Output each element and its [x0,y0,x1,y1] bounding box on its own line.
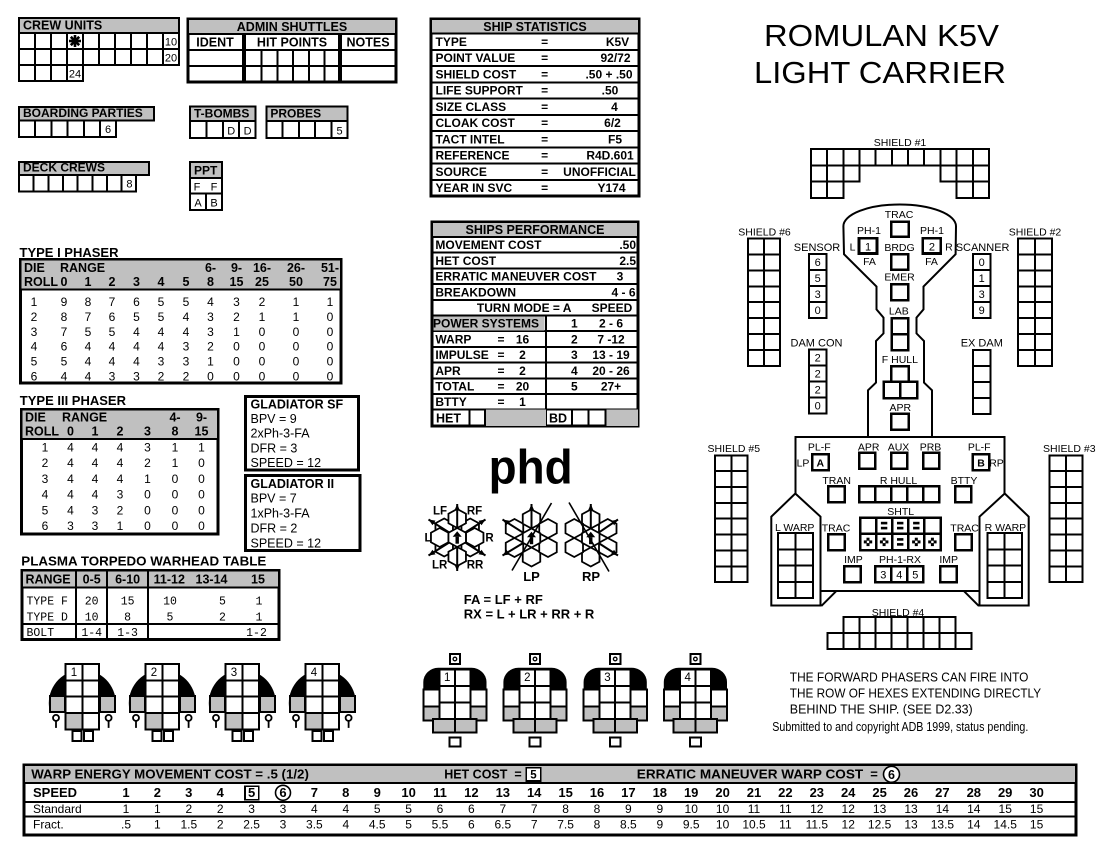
svg-text:4: 4 [67,472,74,486]
svg-text:5: 5 [248,785,255,800]
svg-text:=: = [497,364,504,378]
svg-text:K5V: K5V [606,35,629,49]
svg-text:1: 1 [865,242,871,254]
svg-text:6.5: 6.5 [494,818,511,832]
svg-text:2: 2 [183,370,190,384]
svg-text:SENSOR: SENSOR [794,242,841,254]
svg-text:CREW UNITS: CREW UNITS [23,19,102,33]
svg-text:1-2: 1-2 [246,627,267,640]
svg-text:7 -12: 7 -12 [597,332,625,346]
svg-text:3: 3 [880,570,886,582]
svg-text:4: 4 [117,456,124,470]
svg-text:0: 0 [198,488,205,502]
svg-text:4: 4 [133,325,140,339]
svg-text:1: 1 [444,672,450,684]
svg-text:IDENT: IDENT [196,36,234,50]
svg-text:4: 4 [92,488,99,502]
svg-text:4: 4 [217,785,225,800]
svg-text:0: 0 [815,305,821,317]
svg-text:8: 8 [85,295,92,309]
svg-text:RP: RP [582,569,600,584]
svg-text:1: 1 [42,441,49,455]
svg-text:DIE: DIE [24,261,45,275]
svg-text:3: 3 [571,348,578,362]
svg-text:=: = [497,380,504,394]
svg-text:20: 20 [516,380,530,394]
svg-text:24: 24 [69,69,81,81]
svg-text:3: 3 [185,785,192,800]
svg-text:2: 2 [31,310,38,324]
svg-text:3: 3 [979,289,985,301]
svg-text:.50 + .50: .50 + .50 [585,67,632,81]
svg-text:13: 13 [904,818,918,832]
svg-text:POINT VALUE: POINT VALUE [436,51,516,65]
svg-text:4: 4 [183,310,190,324]
svg-text:6-: 6- [205,261,216,275]
svg-text:RF: RF [467,506,482,518]
svg-text:A: A [194,198,202,210]
svg-text:0: 0 [259,355,266,369]
svg-text:ERRATIC MANEUVER WARP COST: ERRATIC MANEUVER WARP COST [637,767,863,782]
svg-text:20: 20 [85,596,99,609]
svg-text:3: 3 [231,667,237,679]
svg-text:1: 1 [172,441,179,455]
svg-text:14: 14 [967,802,981,816]
svg-text:=: = [541,181,548,195]
svg-text:10: 10 [685,802,699,816]
svg-text:4: 4 [684,672,691,684]
svg-text:0: 0 [172,488,179,502]
svg-text:3: 3 [133,370,140,384]
svg-text:T-BOMBS: T-BOMBS [194,107,249,121]
svg-text:=: = [541,132,548,146]
svg-text:1: 1 [259,310,266,324]
svg-text:4: 4 [342,802,349,816]
svg-text:4: 4 [896,570,902,582]
svg-text:6: 6 [42,519,49,533]
svg-text:F: F [211,182,218,194]
svg-text:5: 5 [183,295,190,309]
svg-text:2: 2 [217,818,224,832]
svg-text:1.5: 1.5 [180,818,197,832]
svg-text:3: 3 [117,488,124,502]
svg-text:2: 2 [519,364,526,378]
svg-text:SHIPS PERFORMANCE: SHIPS PERFORMANCE [466,223,605,237]
svg-text:DFR = 2: DFR = 2 [251,522,298,536]
svg-text:FA: FA [925,256,938,268]
svg-text:4: 4 [158,325,165,339]
svg-text:0: 0 [259,370,266,384]
svg-text:DECK CREWS: DECK CREWS [23,161,105,175]
svg-text:0: 0 [144,519,151,533]
svg-text:IMP: IMP [939,554,958,566]
svg-text:0: 0 [198,503,205,517]
svg-text:13 - 19: 13 - 19 [592,348,630,362]
svg-text:.50: .50 [619,238,636,252]
svg-text:2: 2 [571,332,578,346]
svg-text:9-: 9- [196,411,207,425]
svg-text:4: 4 [109,355,116,369]
svg-text:RP: RP [989,458,1004,470]
svg-text:2: 2 [207,340,214,354]
svg-text:4: 4 [133,355,140,369]
svg-text:1: 1 [327,295,334,309]
svg-text:5: 5 [31,355,38,369]
svg-text:5: 5 [42,503,49,517]
svg-text:PH-1: PH-1 [857,225,881,237]
svg-text:3: 3 [67,519,74,533]
svg-text:PLASMA TORPEDO WARHEAD TABLE: PLASMA TORPEDO WARHEAD TABLE [21,554,266,569]
svg-text:0: 0 [293,355,300,369]
svg-text:MOVEMENT COST: MOVEMENT COST [435,238,542,252]
svg-text:APR: APR [435,364,461,378]
svg-text:4: 4 [311,667,318,679]
svg-text:9: 9 [656,802,663,816]
svg-text:=: = [541,84,548,98]
svg-text:SHIELD #6: SHIELD #6 [738,227,791,239]
svg-text:=: = [541,51,548,65]
svg-text:F HULL: F HULL [882,354,918,366]
svg-text:29: 29 [998,785,1012,800]
svg-text:WARP ENERGY MOVEMENT COST = .5: WARP ENERGY MOVEMENT COST = .5 (1/2) [31,767,309,782]
svg-text:5: 5 [815,273,821,285]
svg-text:50: 50 [289,275,303,289]
svg-text:PH-1-RX: PH-1-RX [879,554,921,566]
svg-text:4: 4 [85,340,92,354]
svg-text:7: 7 [109,295,116,309]
svg-text:3: 3 [92,503,99,517]
svg-text:11-12: 11-12 [154,573,185,587]
svg-text:1xPh-3-FA: 1xPh-3-FA [251,507,311,521]
svg-text:2: 2 [109,275,116,289]
svg-text:24: 24 [841,785,856,800]
svg-text:3: 3 [183,355,190,369]
svg-text:SOURCE: SOURCE [436,165,487,179]
svg-text:3.5: 3.5 [306,818,323,832]
svg-text:12: 12 [810,802,824,816]
svg-text:4: 4 [117,441,124,455]
svg-text:4.5: 4.5 [369,818,386,832]
svg-text:SHIELD #1: SHIELD #1 [874,137,927,149]
svg-text:27: 27 [935,785,949,800]
svg-text:5: 5 [61,355,68,369]
svg-text:10: 10 [401,785,415,800]
svg-text:0: 0 [327,340,334,354]
svg-text:TURN MODE = A: TURN MODE = A [477,301,572,315]
svg-text:5: 5 [336,126,342,138]
svg-text:L: L [850,242,856,254]
svg-text:4: 4 [31,340,38,354]
svg-text:DAM CON: DAM CON [791,338,843,350]
svg-text:12: 12 [464,785,478,800]
svg-text:17: 17 [621,785,635,800]
svg-text:phd: phd [489,442,573,495]
svg-text:4: 4 [611,100,618,114]
svg-text:B: B [977,458,985,470]
svg-text:2: 2 [154,785,161,800]
svg-text:2: 2 [929,242,935,254]
svg-text:0: 0 [327,310,334,324]
svg-text:BREAKDOWN: BREAKDOWN [435,285,516,299]
svg-text:3: 3 [233,295,240,309]
svg-text:3: 3 [42,472,49,486]
svg-text:6: 6 [468,818,475,832]
svg-text:4: 4 [92,441,99,455]
svg-text:0: 0 [67,425,74,439]
svg-text:3: 3 [158,355,165,369]
svg-text:2: 2 [185,802,192,816]
svg-text:Submitted to and copyright ADB: Submitted to and copyright ADB 1999, sta… [772,720,1028,734]
svg-text:=: = [514,768,521,782]
svg-text:5: 5 [167,612,174,625]
svg-text:8: 8 [172,425,179,439]
svg-text:WARP: WARP [435,332,471,346]
svg-text:1: 1 [256,612,263,625]
svg-text:LIFE SUPPORT: LIFE SUPPORT [436,84,524,98]
svg-text:1: 1 [256,596,263,609]
svg-text:RANGE: RANGE [62,411,107,425]
svg-text:1: 1 [172,456,179,470]
svg-text:4: 4 [158,275,165,289]
svg-text:TRAC: TRAC [885,209,914,221]
svg-text:0: 0 [327,325,334,339]
svg-text:PROBES: PROBES [270,107,321,121]
svg-text:UNOFFICIAL: UNOFFICIAL [563,165,636,179]
svg-text:2.5: 2.5 [619,254,636,268]
svg-text:5: 5 [183,275,190,289]
svg-text:14.5: 14.5 [994,818,1018,832]
svg-text:Standard: Standard [33,802,82,816]
svg-text:1: 1 [154,818,161,832]
svg-text:4: 4 [42,488,49,502]
svg-text:15: 15 [251,573,265,587]
svg-text:POWER SYSTEMS: POWER SYSTEMS [433,317,539,331]
svg-text:6: 6 [437,802,444,816]
svg-text:=: = [541,67,548,81]
svg-text:GLADIATOR II: GLADIATOR II [251,477,335,491]
svg-text:PL-F: PL-F [808,442,831,454]
svg-text:TYPE D: TYPE D [27,612,69,625]
svg-text:3: 3 [144,441,151,455]
svg-text:R: R [485,533,494,545]
svg-text:2: 2 [524,672,530,684]
svg-text:15: 15 [1030,818,1044,832]
svg-text:2.5: 2.5 [243,818,260,832]
svg-text:15: 15 [558,785,572,800]
svg-text:5: 5 [219,596,226,609]
svg-text:4: 4 [109,340,116,354]
svg-text:4: 4 [92,472,99,486]
svg-text:10.5: 10.5 [742,818,766,832]
svg-text:4: 4 [342,818,349,832]
svg-text:ROLL: ROLL [25,425,59,439]
svg-text:0: 0 [293,340,300,354]
svg-text:5: 5 [158,295,165,309]
svg-text:IMP: IMP [844,554,863,566]
svg-text:13.5: 13.5 [931,818,955,832]
svg-text:SHIELD #3: SHIELD #3 [1043,443,1096,455]
svg-text:F5: F5 [608,132,622,146]
svg-text:D: D [244,126,252,138]
svg-text:=: = [870,767,878,782]
svg-text:18: 18 [653,785,667,800]
svg-text:2: 2 [151,667,157,679]
svg-text:D: D [227,126,235,138]
svg-text:1: 1 [233,325,240,339]
svg-text:SPEED: SPEED [33,785,77,800]
svg-text:0: 0 [172,472,179,486]
svg-text:SPEED: SPEED [592,301,633,315]
svg-text:8: 8 [594,802,601,816]
svg-text:1-4: 1-4 [81,627,102,640]
svg-text:3: 3 [109,370,116,384]
svg-text:PPT: PPT [194,164,218,178]
svg-text:11: 11 [748,802,761,816]
svg-text:4: 4 [67,456,74,470]
svg-text:0: 0 [172,503,179,517]
svg-text:5: 5 [405,802,412,816]
svg-text:A: A [817,458,825,470]
svg-text:0: 0 [327,370,334,384]
svg-text:9: 9 [374,785,381,800]
svg-text:2: 2 [158,370,165,384]
svg-text:9: 9 [625,802,632,816]
svg-text:13: 13 [904,802,918,816]
svg-text:R: R [945,242,953,254]
svg-text:TOTAL: TOTAL [435,380,474,394]
svg-text:6: 6 [61,340,68,354]
svg-text:EMER: EMER [884,272,915,284]
svg-text:0: 0 [198,519,205,533]
svg-text:3: 3 [604,672,610,684]
svg-text:1: 1 [207,355,214,369]
svg-text:75: 75 [323,275,337,289]
svg-text:1: 1 [85,275,92,289]
svg-text:9-: 9- [231,261,242,275]
svg-text:4: 4 [311,802,318,816]
svg-text:12: 12 [842,818,856,832]
svg-text:PL-F: PL-F [968,442,991,454]
svg-text:4: 4 [571,364,578,378]
svg-text:TRAC: TRAC [822,523,851,535]
svg-text:HET COST: HET COST [444,768,508,782]
svg-text:4: 4 [158,340,165,354]
svg-text:.5: .5 [121,818,131,832]
svg-text:8: 8 [562,802,569,816]
svg-text:8: 8 [594,818,601,832]
svg-text:1: 1 [571,317,578,331]
svg-text:26-: 26- [287,261,305,275]
svg-text:SHIELD #5: SHIELD #5 [708,443,761,455]
svg-text:=: = [541,35,548,49]
svg-text:1: 1 [293,295,300,309]
svg-text:4 - 6: 4 - 6 [611,285,635,299]
svg-text:1: 1 [519,395,526,409]
svg-text:L: L [424,533,431,545]
svg-text:2: 2 [144,456,151,470]
svg-text:7: 7 [531,802,538,816]
svg-text:0: 0 [233,340,240,354]
svg-text:ERRATIC MANEUVER COST: ERRATIC MANEUVER COST [435,270,597,284]
svg-text:4: 4 [67,503,74,517]
svg-text:Fract.: Fract. [33,818,64,832]
svg-text:4: 4 [85,355,92,369]
svg-text:.50: .50 [602,84,619,98]
svg-text:1: 1 [979,273,985,285]
svg-text:4: 4 [183,325,190,339]
svg-text:14: 14 [527,785,542,800]
svg-text:5.5: 5.5 [432,818,449,832]
svg-text:R4D.601: R4D.601 [586,149,634,163]
svg-text:5: 5 [530,769,537,781]
svg-text:IMPULSE: IMPULSE [435,348,488,362]
svg-text:TYPE I PHASER: TYPE I PHASER [20,245,120,260]
svg-text:28: 28 [967,785,981,800]
svg-text:5: 5 [158,310,165,324]
svg-text:7: 7 [61,325,68,339]
svg-text:0: 0 [327,355,334,369]
svg-text:BD: BD [549,412,567,426]
svg-text:FA: FA [863,256,876,268]
svg-text:2: 2 [42,456,49,470]
svg-text:8: 8 [126,179,132,191]
svg-text:21: 21 [747,785,761,800]
svg-text:11: 11 [433,785,447,800]
svg-text:6/2: 6/2 [604,116,621,130]
svg-text:10: 10 [85,612,99,625]
svg-text:23: 23 [810,785,824,800]
svg-text:8.5: 8.5 [620,818,637,832]
svg-text:LP: LP [797,458,810,470]
svg-text:THE ROW OF HEXES EXTENDING DIR: THE ROW OF HEXES EXTENDING DIRECTLY [790,687,1042,701]
svg-text:15: 15 [1030,802,1044,816]
svg-text:2: 2 [219,612,226,625]
svg-text:5: 5 [133,310,140,324]
svg-text:0: 0 [293,370,300,384]
svg-text:1: 1 [293,310,300,324]
svg-text:5: 5 [374,802,381,816]
svg-text:13: 13 [496,785,510,800]
svg-text:20: 20 [715,785,729,800]
svg-text:1: 1 [71,667,77,679]
svg-text:7: 7 [499,802,506,816]
svg-text:LP: LP [523,569,540,584]
svg-text:8: 8 [342,785,349,800]
svg-text:SHIELD #2: SHIELD #2 [1009,227,1062,239]
svg-text:HET COST: HET COST [435,254,496,268]
svg-text:9.5: 9.5 [683,818,700,832]
svg-text:1-3: 1-3 [117,627,138,640]
svg-text:LIGHT CARRIER: LIGHT CARRIER [754,55,1006,90]
svg-text:3: 3 [280,802,287,816]
svg-text:6: 6 [815,257,821,269]
svg-text:14: 14 [936,802,950,816]
svg-text:0: 0 [259,340,266,354]
svg-text:3: 3 [248,802,255,816]
svg-text:BTTY: BTTY [435,395,466,409]
svg-text:SPEED = 12: SPEED = 12 [251,456,322,470]
svg-text:4: 4 [207,295,214,309]
svg-text:0: 0 [144,503,151,517]
svg-text:2xPh-3-FA: 2xPh-3-FA [251,427,311,441]
svg-text:6: 6 [468,802,475,816]
svg-text:1: 1 [122,785,129,800]
svg-text:0: 0 [207,370,214,384]
svg-text:2 - 6: 2 - 6 [599,317,623,331]
svg-text:0: 0 [815,401,821,413]
svg-text:3: 3 [617,270,624,284]
svg-text:=: = [497,395,504,409]
